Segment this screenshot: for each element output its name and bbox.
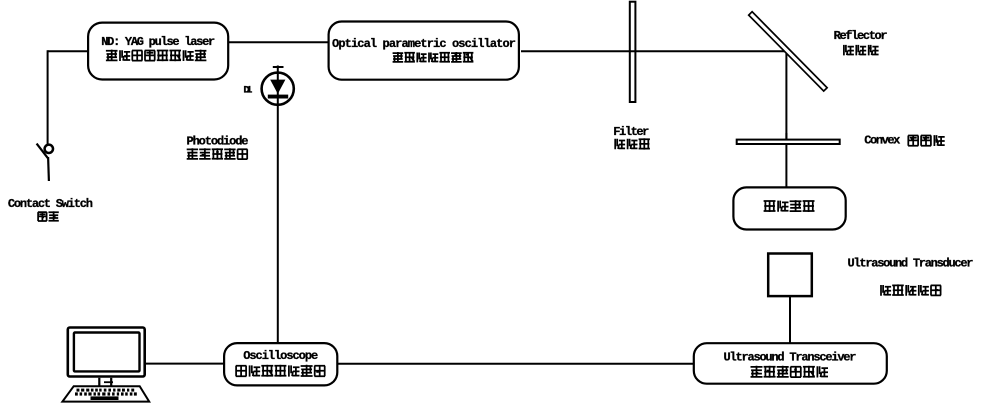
svg-text:Convex: Convex (864, 134, 900, 148)
svg-text:ND: YAG pulse laser: ND: YAG pulse laser (101, 35, 215, 49)
svg-text:Optical parametric oscillator: Optical parametric oscillator (332, 37, 516, 51)
svg-text:Reflector: Reflector (834, 29, 888, 43)
svg-text:Contact Switch: Contact Switch (8, 197, 93, 211)
svg-text:Ultrasound Transducer: Ultrasound Transducer (848, 256, 974, 270)
svg-text:Filter: Filter (613, 125, 649, 139)
svg-text:Photodiode: Photodiode (187, 134, 249, 148)
svg-text:D1: D1 (243, 84, 252, 96)
svg-text:Ultrasound Transceiver: Ultrasound Transceiver (724, 351, 857, 365)
svg-text:Oscilloscope: Oscilloscope (243, 349, 318, 363)
